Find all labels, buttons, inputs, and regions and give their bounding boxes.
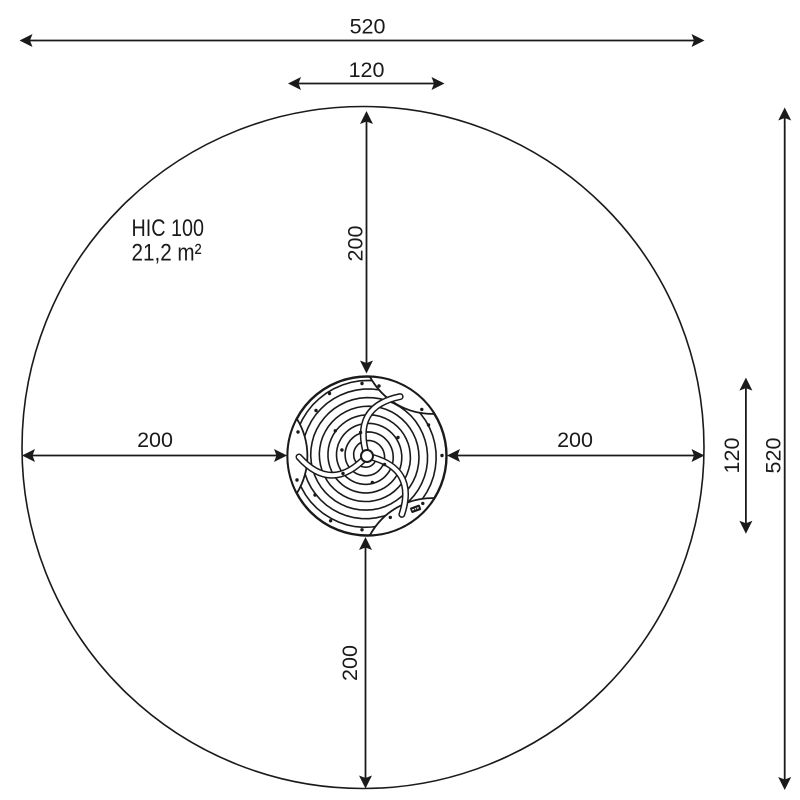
- svg-text:21,2 m²: 21,2 m²: [132, 240, 202, 267]
- svg-text:520: 520: [761, 438, 785, 474]
- svg-text:HIC 100: HIC 100: [132, 215, 205, 242]
- svg-text:200: 200: [338, 645, 362, 681]
- svg-text:120: 120: [349, 58, 385, 82]
- svg-text:520: 520: [350, 15, 386, 39]
- svg-text:200: 200: [137, 428, 173, 452]
- svg-text:120: 120: [720, 438, 744, 474]
- svg-text:200: 200: [557, 428, 593, 452]
- svg-text:200: 200: [343, 226, 367, 262]
